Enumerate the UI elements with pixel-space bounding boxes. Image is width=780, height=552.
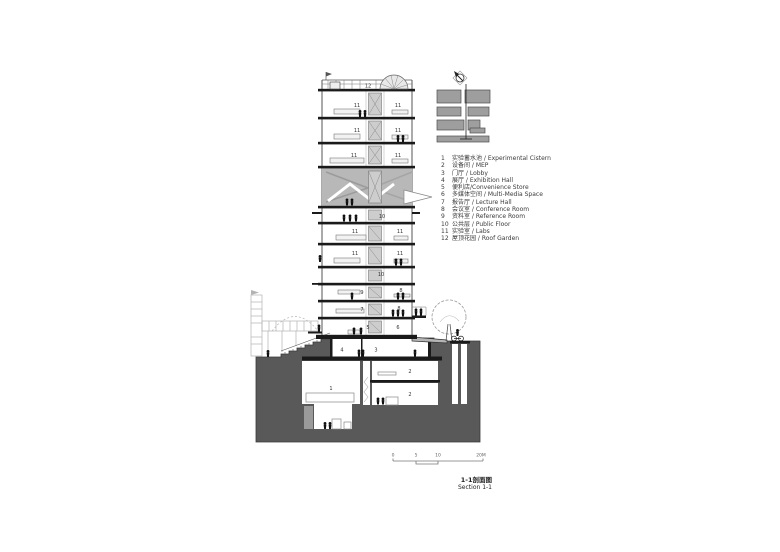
floor-label-public: 10 [378,272,384,278]
floor-label-public: 10 [379,214,385,220]
north-arrow-icon [453,71,467,85]
right-platform-railing [412,307,426,316]
floor-label-labs: 11 [395,103,401,109]
floor-label-conference: 8 [397,306,400,312]
legend-item-label: 资料室 / Reference Room [452,213,525,220]
roof-tree [380,75,408,89]
scale-tick-20: 20M [476,453,486,459]
floor-label-lobby: 3 [374,348,377,354]
roof-antenna [326,72,332,80]
page: { "legend": { "items": [ {"num": "1", "l… [0,0,780,552]
drawing-title: 1-1剖面图 Section 1-1 [392,476,492,492]
drawing-title-zh: 1-1剖面图 [392,476,492,484]
legend-item: 6多媒体空间 / Multi-Media Space [441,191,551,198]
drawing-title-en: Section 1-1 [392,484,492,492]
mep-room-upper [372,361,438,380]
legend-item-label: 公共层 / Public Floor [452,221,510,228]
legend-item-label: 报告厅 / Lecture Hall [452,199,512,206]
lightwell-a [452,344,458,404]
legend-item-label: 多媒体空间 / Multi-Media Space [452,191,543,198]
legend-item-label: 门厅 / Lobby [452,170,488,177]
legend-item: 2设备间 / MEP [441,162,551,169]
sump [304,406,313,429]
floor-label-labs: 11 [397,251,403,257]
key-plan-buildings [437,90,490,142]
legend-item: 7报告厅 / Lecture Hall [441,199,551,206]
floor-label-lecture: 7 [360,307,363,313]
floor-label-labs: 11 [395,153,401,159]
legend: 1实验蓄水池 / Experimental Cistern 2设备间 / MEP… [441,155,551,243]
floor-label-labs: 11 [351,153,357,159]
floor-label-cistern: 1 [329,386,332,392]
ground-and-basement [256,333,480,442]
floor-label-reference: 9 [360,290,363,296]
floor-label-mep: 2 [408,392,411,398]
legend-item: 10公共层 / Public Floor [441,221,551,228]
floor-slabs [316,89,417,339]
legend-item: 9资料室 / Reference Room [441,213,551,220]
key-plan [437,71,490,142]
scale-tick-0: 0 [392,453,395,459]
floor-label-labs: 11 [395,128,401,134]
floor-label-multimedia: 6 [396,325,399,331]
scale-tick-10: 10 [435,453,441,459]
legend-item-label: 屋顶花园 / Roof Garden [452,235,519,242]
floor-label-labs: 11 [352,229,358,235]
floor-label-labs: 11 [354,103,360,109]
floor-label-roof: 12 [365,84,371,90]
tower-section [308,72,432,339]
facade-ledges [308,212,426,334]
street-tree [432,300,466,341]
legend-item-label: 设备间 / MEP [452,162,488,169]
cistern-room [302,361,360,404]
floor-label-mep: 2 [408,369,411,375]
section-drawing-canvas: 12 11 11 11 11 11 11 10 11 11 11 11 10 9… [0,0,780,552]
floor-label-store: 5 [366,325,369,331]
legend-item: 12屋顶花园 / Roof Garden [441,235,551,242]
legend-item: 3门厅 / Lobby [441,170,551,177]
scale-tick-5: 5 [415,453,418,459]
elevator-core [369,93,382,333]
floor-label-labs: 11 [354,128,360,134]
floor-label-labs: 11 [352,251,358,257]
scale-bar: 0 5 10 20M [392,453,486,465]
arrow-right [404,190,432,204]
cistern-pit [314,404,352,429]
lightwell-b [461,344,467,404]
roof-box [330,82,340,89]
floor-label-labs: 11 [397,229,403,235]
floor-label-exhibition: 4 [340,348,343,354]
floor-label-conference: 8 [399,288,402,294]
